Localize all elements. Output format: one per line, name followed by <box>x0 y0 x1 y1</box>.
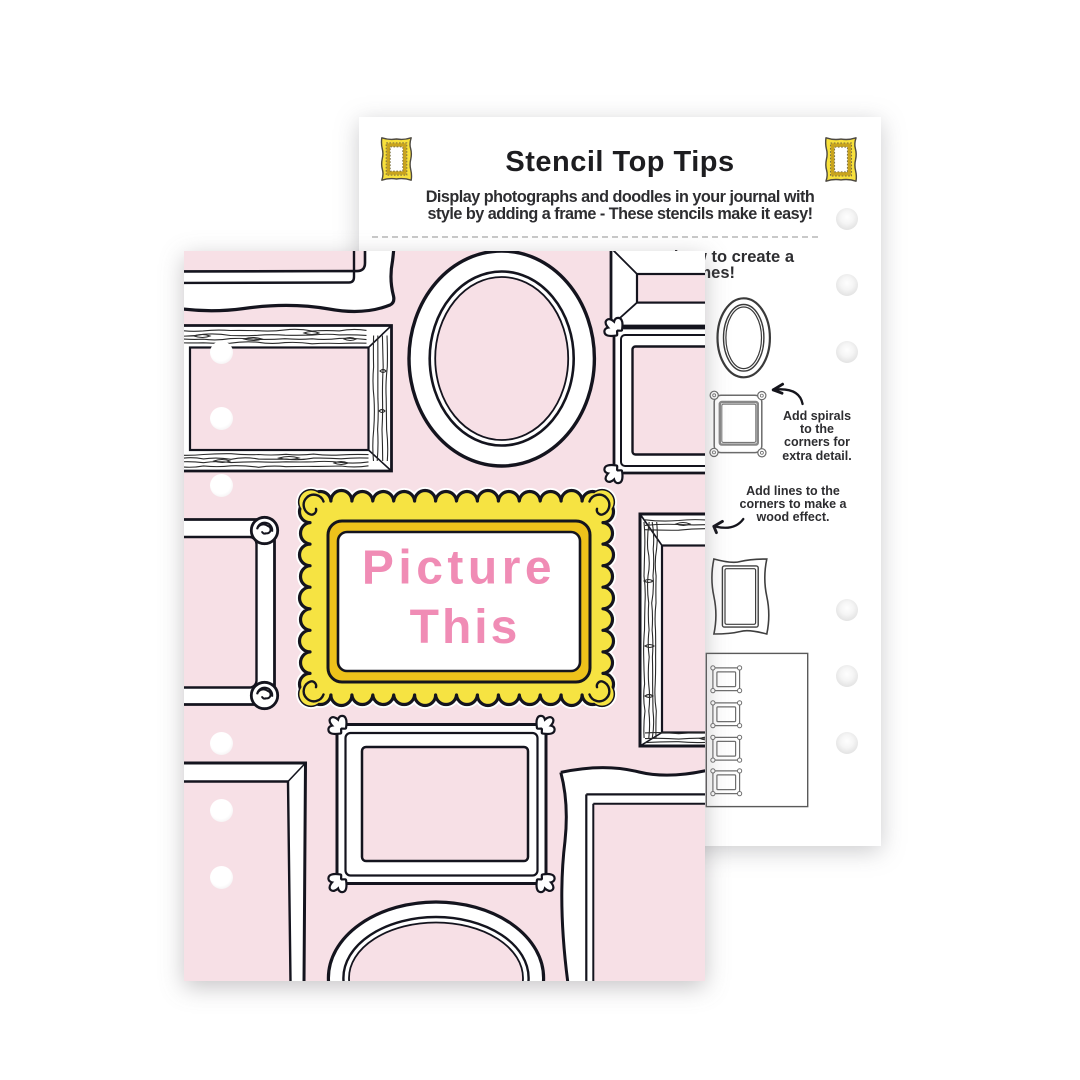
svg-text:This: This <box>410 601 521 654</box>
svg-text:Picture: Picture <box>362 541 556 594</box>
